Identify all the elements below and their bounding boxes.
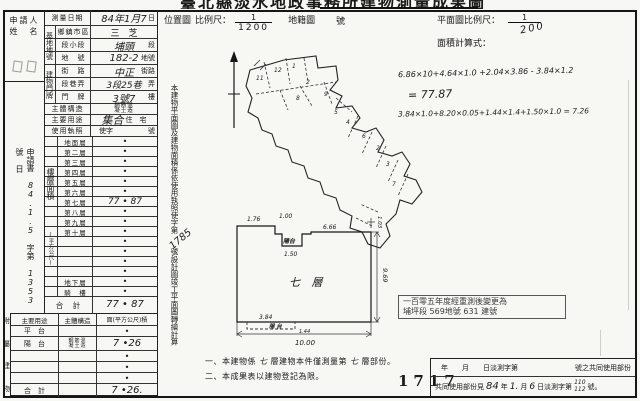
lot-number: 9 — [324, 91, 328, 98]
street-label: 街 路 — [57, 65, 91, 77]
license-prefix: 使字 — [99, 126, 113, 136]
floor-area: • — [93, 287, 157, 296]
annex-row: • — [11, 351, 157, 362]
floor-label: 第二層 — [59, 147, 93, 156]
section-suffix: 段 — [148, 40, 155, 50]
note1-floor-handwritten: 七 — [256, 356, 271, 367]
floor-row-seventh: 第七層77 • 87 — [45, 197, 157, 207]
site-group-label: 基地地號 — [44, 26, 56, 65]
shared-use-prefix: 共同使用部份見 — [435, 382, 484, 392]
shared-use-suffix: 號。 — [588, 382, 602, 392]
plan-scale-header: 平面圖比例尺： 1 200 — [437, 13, 545, 34]
floor-label — [59, 267, 93, 276]
row-license: 使用執照 使字 號 — [45, 126, 157, 137]
floor-label: 第七層 — [59, 197, 93, 206]
shared-use-day-handwritten: 6 — [529, 382, 535, 392]
floor-row: 第八層• — [45, 207, 157, 217]
annex-side-char: 物 — [3, 384, 10, 394]
plan-scale-fraction: 1 200 — [504, 13, 545, 34]
annex-area: • — [97, 351, 157, 361]
street-suffix: 街路 — [141, 66, 155, 76]
annex-side-char: 附 — [3, 316, 10, 326]
shared-use-box: 年 月 日淡測字第 號之共同使用部份 共同使用部份見 84 年 1. 月 6 日… — [430, 358, 635, 396]
license-suffix: 號 — [148, 126, 155, 136]
lot-suffix: 地號 — [141, 53, 155, 63]
receipt-number-handwritten: 1353 — [26, 269, 35, 305]
annex-area: • — [97, 326, 157, 336]
cadastral-map-suffix: 號 — [336, 14, 345, 27]
floor-label: 地面層 — [59, 137, 93, 146]
row-lot-number: 地 號 182-2 地號 — [45, 52, 157, 65]
scanned-survey-form: 臺北縣淡水地政事務所建物測量成果圖 申請人 姓 名 申請書 84.1.5 字第 … — [0, 0, 640, 401]
row-main-use: 主要用途 集合 住 宅 — [45, 115, 157, 126]
floor-label: 第八層 — [59, 207, 93, 216]
use-printed: 住 宅 — [126, 115, 147, 125]
lot-number: 2 — [306, 79, 310, 86]
shared-use-year-handwritten: 84 — [486, 381, 499, 392]
survey-date-value: 84年1月7 — [101, 10, 146, 25]
floor-row: 第二層• — [45, 147, 157, 157]
dim-balcony: 3.84 — [259, 314, 273, 321]
annex-side-char: 屬 — [3, 339, 10, 349]
floor-area: • — [93, 177, 157, 186]
use-label: 主要用途 — [45, 115, 91, 125]
shared-use-number2: 112 — [574, 387, 585, 394]
floor-area: • — [93, 267, 157, 276]
floor-label: 第六層 — [59, 187, 93, 196]
note1-part-a: 一、本建物係 — [205, 357, 256, 366]
floor-area: • — [93, 167, 157, 176]
lot-number: 4 — [346, 119, 350, 126]
annex-area: • — [97, 362, 157, 372]
floor-label — [59, 257, 93, 266]
annex-use — [11, 351, 59, 361]
note1-floor2-handwritten: 七 — [347, 356, 362, 367]
annex-area: • — [97, 373, 157, 383]
annex-use: 陽 台 — [11, 337, 59, 350]
shared-use-month-label: 月 — [520, 382, 527, 392]
note-line2: 二、本成果表以建物登記為限。 — [205, 371, 324, 382]
dim-notch: 1.50 — [284, 251, 298, 258]
dim-top-mid: 1.00 — [279, 213, 293, 220]
floor-area: • — [93, 147, 157, 156]
lot-number: 1 — [292, 63, 296, 70]
street-value: 中正 — [114, 64, 134, 79]
shared-use-numbers-handwritten: 110 112 — [574, 380, 585, 393]
north-arrow-icon — [227, 50, 241, 132]
floor-row: 騎 樓• — [45, 287, 157, 297]
annex-structure — [59, 373, 97, 383]
floor-total-label: 合 計 — [45, 297, 93, 313]
annex-structure — [59, 351, 97, 361]
location-map-header: 位置圖 比例尺： 1 1200 地籍圖 — [164, 13, 315, 33]
scan-artifact — [600, 330, 601, 356]
floor-area: • — [93, 217, 157, 226]
lot-number: 5 — [334, 109, 338, 116]
shared-use-row2: 共同使用部份見 84 年 1. 月 6 日淡測字第 110 112 號。 — [431, 377, 635, 396]
location-scale-denominator: 1200 — [238, 23, 269, 33]
row-door-number: 門 牌 3號7 樓 — [45, 91, 157, 104]
section-value: 埔頭 — [114, 38, 134, 53]
floor-row: 第五層• — [45, 177, 157, 187]
floor-area-side-text: 樓層面積 — [45, 168, 56, 200]
plan-scale-label: 平面圖比例尺： — [437, 13, 500, 26]
license-label: 使用執照 — [45, 126, 91, 136]
floor-row: • — [45, 247, 157, 257]
floor-label — [59, 247, 93, 256]
row-section: 段小段 埔頭 段 — [45, 39, 157, 52]
floor-total-value: 77 • 87 — [93, 297, 157, 313]
structure-label: 主體構造 — [45, 104, 91, 114]
floor-area: • — [93, 207, 157, 216]
annex-header-use: 主要用途 — [11, 314, 59, 325]
room-label: 七 層 — [289, 276, 327, 289]
annex-structure — [59, 362, 97, 372]
section-label: 段小段 — [57, 39, 91, 51]
survey-date-label: 測量日期 — [45, 10, 91, 25]
floor-row: 第六層• — [45, 187, 157, 197]
lane-suffix: 弄 — [148, 79, 155, 89]
floor-label — [59, 237, 93, 246]
row-survey-date: 測量日期 84年1月7 日 — [45, 10, 157, 26]
floor-label: 第九層 — [59, 217, 93, 226]
location-scale-label: 比例尺： — [195, 13, 231, 26]
margin-receipt-note: 申請書 84.1.5 字第 1353 號 日 — [16, 148, 36, 318]
applicant-label-1: 申請人 — [10, 15, 40, 26]
note1-part-c: 層部份。 — [362, 357, 396, 366]
annex-use — [11, 373, 59, 383]
floor-total-row: 合 計 77 • 87 — [45, 297, 157, 313]
lot-number: 3 — [386, 161, 390, 168]
shared-use-row1-right: 號之共同使用部份 — [575, 363, 631, 373]
resurvey-stamp-line2: 埔坪段 569地號 631 建號 — [403, 307, 561, 317]
lot-label: 地 號 — [57, 52, 91, 64]
certification-note-part1: 本建物平面圖及建物面積係依使用執照 — [170, 84, 179, 212]
floor-area: • — [93, 247, 157, 256]
floor-row: 地面層• — [45, 137, 157, 147]
receipt-label: 申請書 — [26, 148, 35, 172]
lot-number: 6 — [362, 133, 366, 140]
shared-use-row1-left: 年 月 日淡測字第 — [441, 363, 518, 373]
lot-number: 11 — [256, 75, 264, 82]
receipt-zi: 字第 — [26, 244, 35, 260]
floor-area: • — [93, 277, 157, 286]
floor-row: 第九層• — [45, 217, 157, 227]
location-map-label: 位置圖 — [164, 13, 191, 26]
dim-balcony-small: 1.44 — [299, 329, 310, 335]
annex-header-area: 面(平方公尺)積 — [97, 314, 157, 325]
floor-area: • — [93, 187, 157, 196]
lot-value: 182-2 — [109, 53, 138, 64]
annex-structure — [59, 384, 97, 397]
floor-area: • — [93, 227, 157, 236]
shared-use-month-handwritten: 1. — [510, 382, 519, 392]
floor-label: 第四層 — [59, 167, 93, 176]
floor-label: 騎 樓 — [59, 287, 93, 296]
balcony-bottom-label: 陽 台 — [269, 323, 282, 330]
note1-part-b: 層建物本件僅測量第 — [271, 357, 348, 366]
dim-top-right: 6.66 — [323, 224, 337, 231]
lot-number: 12 — [274, 67, 282, 74]
row-lane: 段巷弄 3段25巷 弄 — [45, 78, 157, 91]
floor-area: • — [93, 137, 157, 146]
annex-total-label: 合 計 — [11, 384, 59, 397]
annex-use: 平 台 — [11, 326, 59, 336]
floor-row: • — [45, 267, 157, 277]
dim-bottom: 10.00 — [295, 339, 316, 347]
floor-row: 第十層• — [45, 227, 157, 237]
location-scale-numerator: 1 — [235, 13, 272, 23]
location-scale-fraction: 1 1200 — [235, 13, 272, 33]
annex-header-structure: 主體構造 — [59, 314, 97, 325]
applicant-name-box: 申請人 姓 名 — [5, 12, 45, 82]
floor-area-handwritten: 77 • 87 — [93, 197, 157, 206]
township-value: 三 芝 — [91, 26, 157, 38]
township-label: 鄉鎮市區 — [57, 26, 91, 38]
annex-table: 主要用途 主體構造 面(平方公尺)積 平 台 • 陽 台 鋼筋混 凝土造 7 •… — [10, 313, 158, 396]
floor-area: • — [93, 237, 157, 246]
floor-area-side-unit: (平方公尺) — [47, 232, 55, 266]
annex-row: • — [11, 362, 157, 373]
floor-label: 第十層 — [59, 227, 93, 236]
dim-top-left: 1.76 — [247, 216, 261, 223]
annex-total-value: 7 •26. — [97, 384, 157, 397]
annex-header-row: 主要用途 主體構造 面(平方公尺)積 — [11, 314, 157, 326]
floor-row: • — [45, 237, 157, 247]
floor-label: 地下層 — [59, 277, 93, 286]
dim-right-small: 1.03 — [376, 216, 382, 229]
note-line1: 一、本建物係七層建物本件僅測量第七層部份。 — [205, 356, 405, 367]
annex-structure — [59, 326, 97, 336]
floor-row: 第四層• — [45, 167, 157, 177]
door-label: 門 牌 — [57, 91, 91, 103]
applicant-seal-mark — [12, 60, 22, 72]
building-info-table: 測量日期 84年1月7 日 鄉鎮市區 三 芝 段小段 埔頭 段 地 號 182-… — [44, 10, 158, 313]
applicant-seal-mark — [26, 60, 36, 72]
certification-note-part3: 號設計圖竣工平面圖轉繪計算 — [170, 248, 179, 346]
floor-area: • — [93, 157, 157, 166]
annex-row-balcony: 陽 台 鋼筋混 凝土造 7 •26 — [11, 337, 157, 351]
resurvey-stamp-line1: 一百零五年度經重測後變更為 — [403, 297, 561, 307]
shared-use-year-label: 年 — [501, 382, 508, 392]
floor-area: • — [93, 257, 157, 266]
floor-row: 第三層• — [45, 157, 157, 167]
floor-row: • — [45, 257, 157, 267]
receipt-hao: 號 — [15, 148, 24, 156]
floor-label: 第五層 — [59, 177, 93, 186]
floor-label: 第三層 — [59, 157, 93, 166]
shared-use-doc-label: 日淡測字第 — [537, 382, 572, 392]
shared-use-row1: 年 月 日淡測字第 號之共同使用部份 — [431, 359, 635, 377]
annex-row: 平 台 • — [11, 326, 157, 337]
lot-number: 2 — [376, 145, 380, 152]
annex-total-row: 合 計 7 •26. — [11, 384, 157, 397]
cadastral-map-label: 地籍圖 — [288, 13, 315, 26]
annex-side-char: 建 — [3, 361, 10, 371]
annex-structure-stamp2: 凝土造 — [68, 344, 86, 349]
annex-side-label: 附 屬 建 物 — [3, 316, 10, 394]
applicant-label-2: 姓 名 — [10, 26, 40, 37]
balcony-top-label: 陽台 — [283, 237, 296, 245]
annex-row: • — [11, 373, 157, 384]
survey-date-suffix: 日 — [148, 13, 155, 23]
lane-label: 段巷弄 — [57, 78, 91, 90]
floor-area-side-label: 樓層面積 (平方公尺) — [44, 137, 58, 297]
scan-artifact — [628, 80, 629, 310]
row-street: 街 路 中正 街路 — [45, 65, 157, 78]
address-group-label: 建物門牌 — [44, 65, 56, 104]
dim-right: 9.69 — [381, 268, 389, 282]
receipt-date-handwritten: 84.1.5 — [26, 181, 35, 235]
resurvey-stamp-box: 一百零五年度經重測後變更為 埔坪段 569地號 631 建號 — [398, 295, 566, 319]
annex-use — [11, 362, 59, 372]
area-calc-label: 面積計算式： — [437, 36, 491, 49]
lot-number: 8 — [296, 95, 300, 102]
annex-area-handwritten: 7 •26 — [97, 337, 157, 350]
floor-plan-drawing: 1.76 1.00 陽台 1.50 6.66 1.03 9.69 10.00 3… — [225, 208, 395, 350]
floor-row: 地下層• — [45, 277, 157, 287]
receipt-ri: 日 — [15, 165, 24, 173]
door-suffix: 樓 — [148, 92, 155, 102]
certification-note-part2: 使字第 — [170, 212, 179, 235]
title-underline — [320, 7, 478, 9]
lot-number: 7 — [392, 181, 396, 188]
row-township: 鄉鎮市區 三 芝 — [45, 26, 157, 39]
